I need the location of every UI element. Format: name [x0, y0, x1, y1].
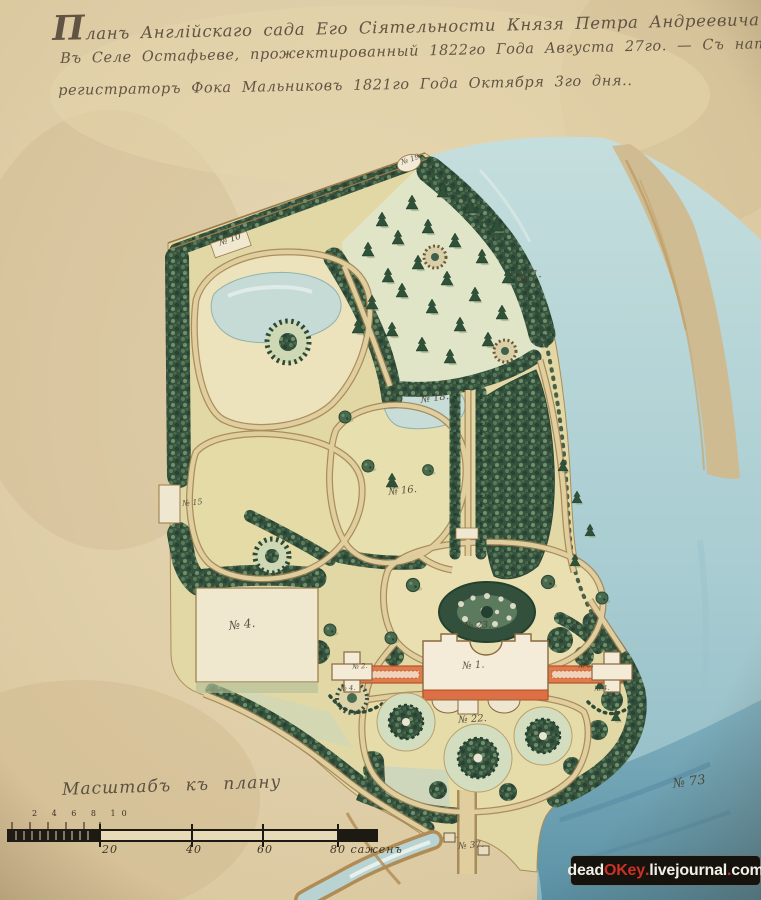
map-label-4-plot: № 4.	[228, 617, 256, 632]
map-label-23: № 23.	[464, 621, 492, 632]
estate-plan-artwork	[0, 0, 761, 900]
watermark: deadOKey.livejournal.com	[571, 856, 760, 885]
scale-tick-40: 40	[186, 843, 202, 856]
map-label-2-left: № 2.	[352, 663, 368, 671]
photographed-estate-plan: Планъ Англійскаго сада Его Сіятельности …	[0, 0, 761, 900]
watermark-part-livejournal: livejournal	[649, 862, 727, 880]
photo-vignette	[0, 0, 761, 900]
map-label-2-right: № 2.	[578, 662, 594, 670]
watermark-part-dead: dead	[567, 862, 604, 880]
watermark-part-okey: OKey	[604, 862, 645, 880]
scale-minor-numbers: 2 4 6 8 10	[32, 810, 133, 818]
map-label-22: № 22.	[458, 714, 487, 726]
scale-tick-80: 80 саженъ	[330, 843, 403, 856]
map-label-4-left: № 4.	[340, 685, 356, 693]
watermark-part-com: com	[731, 862, 761, 880]
map-label-4-right: № 4.	[594, 685, 610, 693]
map-label-1-palace: № 1.	[462, 660, 485, 672]
scale-tick-20: 20	[102, 843, 118, 856]
scale-tick-60: 60	[257, 843, 273, 856]
